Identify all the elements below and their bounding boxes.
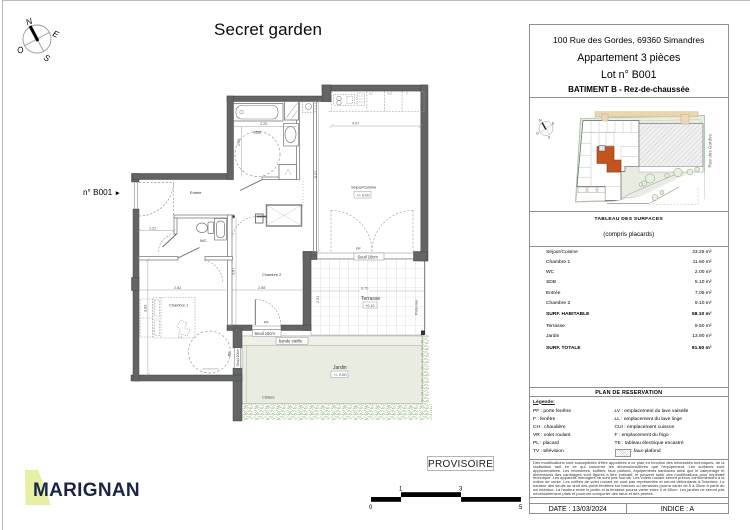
svg-text:+/- 0.00: +/- 0.00 [357, 194, 370, 198]
svg-text:emplacement: emplacement [203, 367, 219, 371]
svg-text:3.67: 3.67 [231, 268, 235, 275]
svg-text:Rue des Gordes: Rue des Gordes [708, 133, 713, 167]
svg-text:2.58: 2.58 [258, 286, 265, 290]
svg-text:6.70: 6.70 [361, 287, 368, 291]
svg-text:E: E [552, 121, 555, 125]
svg-text:O: O [536, 131, 539, 135]
svg-text:MARIGNAN: MARIGNAN [33, 480, 140, 501]
svg-text:+0.10: +0.10 [365, 304, 375, 308]
svg-text:Chambre 2: Chambre 2 [262, 272, 281, 277]
svg-text:PF: PF [356, 247, 362, 251]
svg-text:Chambre 1: Chambre 1 [169, 303, 188, 308]
svg-text:Terrasse: Terrasse [361, 296, 380, 302]
svg-text:0: 0 [369, 505, 373, 511]
svg-text:2.58: 2.58 [237, 139, 241, 146]
svg-text:2.82: 2.82 [174, 286, 181, 290]
svg-text:PF: PF [264, 321, 270, 325]
svg-text:bande stérile: bande stérile [279, 339, 303, 344]
svg-text:3: 3 [459, 487, 463, 493]
svg-text:CUI: CUI [387, 92, 392, 96]
svg-text:SDB: SDB [253, 130, 261, 135]
svg-text:PF: PF [227, 351, 232, 357]
svg-text:1: 1 [399, 487, 403, 493]
svg-text:4.07: 4.07 [352, 122, 359, 126]
svg-text:5: 5 [519, 505, 523, 511]
svg-text:Séjour/Cuisine: Séjour/Cuisine [351, 185, 376, 190]
svg-text:Seuil 10cm: Seuil 10cm [358, 254, 379, 259]
svg-text:WC: WC [200, 238, 207, 243]
svg-text:S: S [548, 135, 551, 139]
svg-text:+/- 0.00: +/- 0.00 [334, 373, 347, 377]
svg-text:Jardin: Jardin [333, 365, 347, 371]
svg-text:Seuil 10cm: Seuil 10cm [236, 349, 240, 367]
svg-text:N: N [539, 118, 542, 122]
svg-text:2.20: 2.20 [260, 122, 267, 126]
svg-text:2.51: 2.51 [316, 296, 320, 303]
svg-text:5.07: 5.07 [314, 171, 318, 178]
svg-text:Clôture: Clôture [262, 395, 275, 400]
svg-text:Pare-vue: Pare-vue [415, 300, 419, 315]
svg-text:F: F [406, 92, 408, 96]
svg-text:Seuil 10cm: Seuil 10cm [255, 331, 276, 336]
svg-text:Entrée: Entrée [190, 190, 201, 195]
svg-text:1.22: 1.22 [149, 226, 156, 230]
svg-text:LV: LV [369, 92, 372, 96]
svg-text:3.89: 3.89 [144, 305, 148, 312]
